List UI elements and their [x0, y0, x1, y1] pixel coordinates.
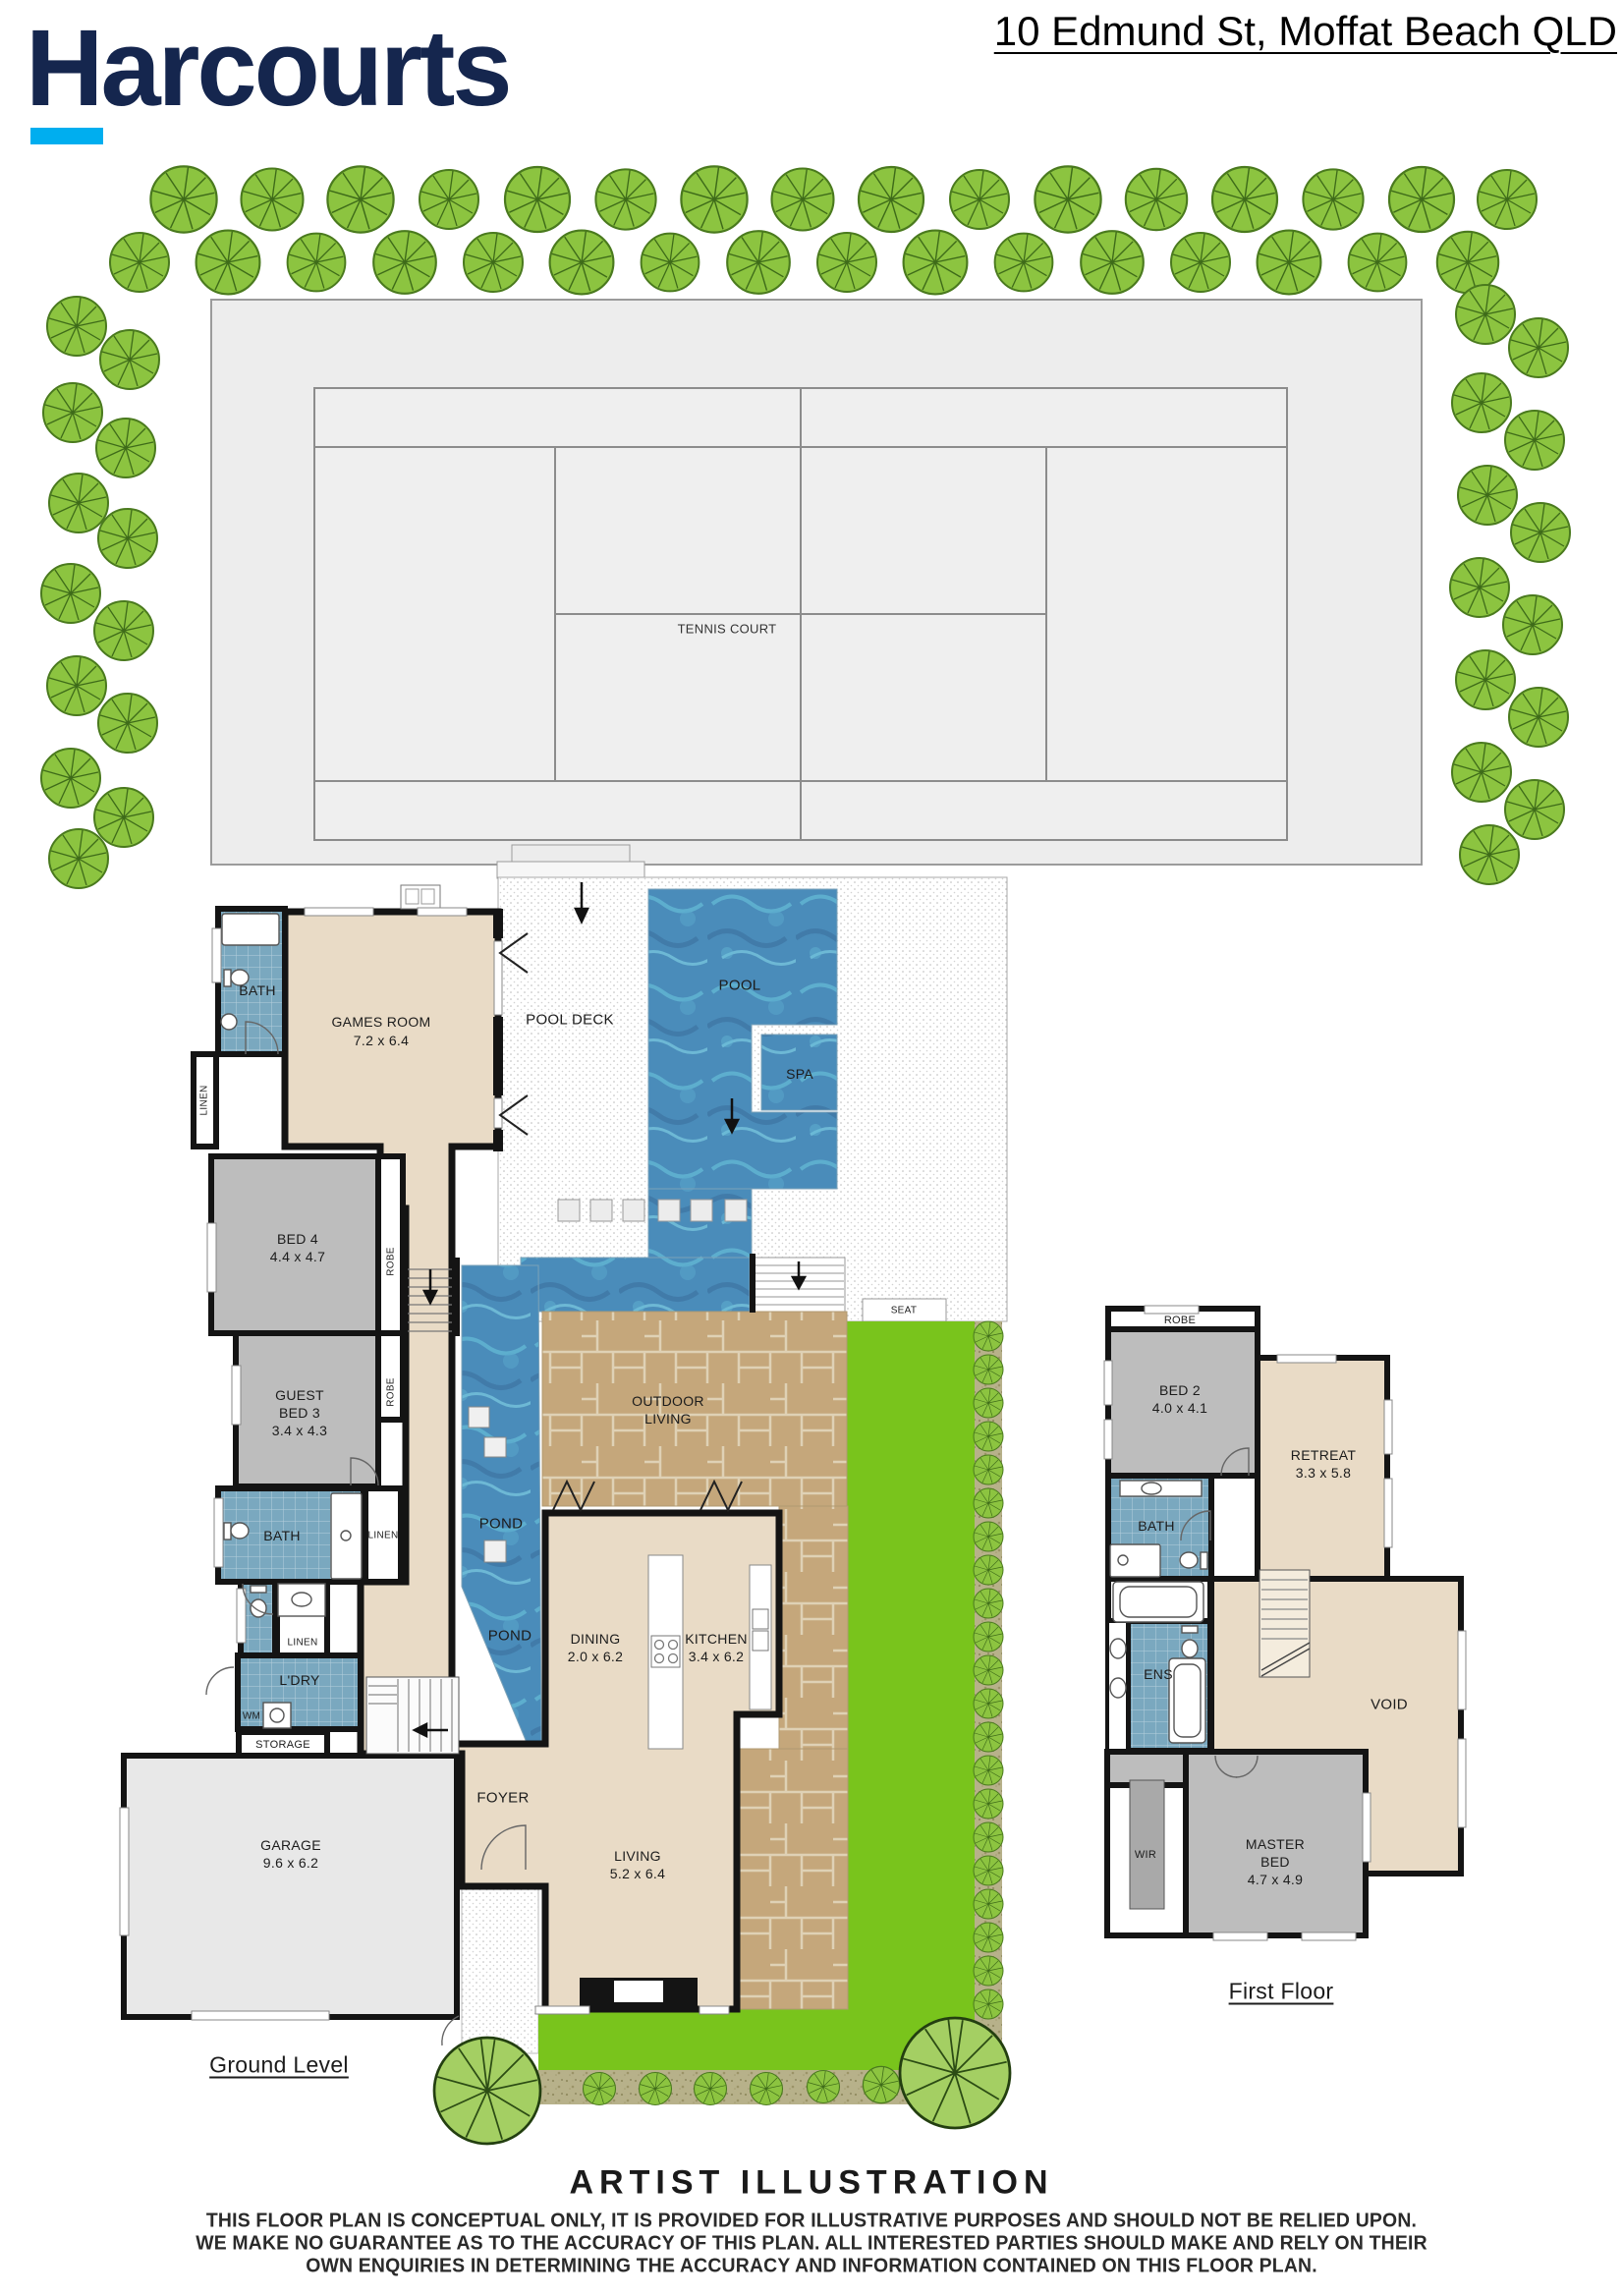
bath2-label: BATH [263, 1528, 301, 1543]
storage-label: STORAGE [255, 1739, 310, 1751]
pond [462, 1265, 541, 1745]
toilet-icon [1182, 1626, 1198, 1657]
toilet-icon [1180, 1552, 1207, 1569]
retreat-dims: 3.3 x 5.8 [1296, 1465, 1351, 1481]
seat-label: SEAT [891, 1306, 918, 1316]
kitchen-label: KITCHEN [685, 1631, 748, 1647]
bed4-dims: 4.4 x 4.7 [270, 1249, 325, 1264]
bed4-label: BED 4 [277, 1231, 318, 1247]
robe1-label: ROBE [386, 1247, 397, 1276]
pool-label: POOL [719, 978, 761, 994]
guest-bed3-l1: GUEST [275, 1387, 324, 1403]
stairs-main [366, 1677, 459, 1754]
robe-ff-label: ROBE [1164, 1315, 1196, 1326]
room-garage [124, 1756, 457, 2017]
bath1-label: BATH [239, 982, 276, 998]
floorplan-graphics [0, 0, 1623, 2296]
kitchen-dims: 3.4 x 6.2 [689, 1649, 744, 1664]
foyer-label: FOYER [476, 1790, 529, 1807]
artist-illustration-title: ARTIST ILLUSTRATION [570, 2164, 1054, 2203]
retreat-label: RETREAT [1291, 1447, 1356, 1463]
pool-deck-label: POOL DECK [526, 1012, 614, 1029]
master-bed-dims: 4.7 x 4.9 [1248, 1872, 1303, 1887]
master-bed-l1: MASTER [1246, 1836, 1305, 1852]
toilet-icon [224, 1523, 249, 1540]
linen3-label: LINEN [288, 1638, 318, 1649]
spa-label: SPA [786, 1066, 813, 1082]
wm-label: WM [243, 1711, 260, 1722]
tennis-court-label: TENNIS COURT [678, 622, 777, 637]
bed2-label: BED 2 [1159, 1382, 1201, 1398]
ground-level-caption: Ground Level [209, 2052, 349, 2079]
garage-dims: 9.6 x 6.2 [263, 1855, 318, 1871]
robe2-label: ROBE [386, 1377, 397, 1407]
stairs-ff [1259, 1570, 1310, 1677]
pond1-label: POND [479, 1516, 524, 1533]
ldry-label: L'DRY [279, 1672, 319, 1688]
living-dims: 5.2 x 6.4 [610, 1866, 665, 1881]
room-robe1 [378, 1156, 403, 1333]
first-floor-caption: First Floor [1229, 1979, 1334, 2005]
linen1-label: LINEN [199, 1086, 210, 1116]
games-room-label: GAMES ROOM [331, 1014, 430, 1030]
outdoor-living-l1: OUTDOOR [632, 1393, 704, 1409]
bed2-dims: 4.0 x 4.1 [1152, 1400, 1207, 1416]
linen2-label: LINEN [368, 1531, 399, 1541]
garage-label: GARAGE [260, 1837, 321, 1853]
disclaimer-line1: THIS FLOOR PLAN IS CONCEPTUAL ONLY, IT I… [206, 2211, 1417, 2233]
harcourts-logo: Harcourts [26, 6, 510, 131]
tennis-court [211, 300, 1422, 878]
disclaimer-line3: OWN ENQUIRIES IN DETERMINING THE ACCURAC… [306, 2256, 1317, 2278]
games-room-dims: 7.2 x 6.4 [354, 1033, 409, 1048]
logo-underline-bar [30, 128, 103, 144]
dining-dims: 2.0 x 6.2 [568, 1649, 623, 1664]
ens-label: ENS [1144, 1666, 1173, 1682]
floorplan-page: Harcourts 10 Edmund St, Moffat Beach QLD… [0, 0, 1623, 2296]
bath-ff-label: BATH [1138, 1518, 1175, 1534]
dining-label: DINING [571, 1631, 621, 1647]
void-label: VOID [1371, 1697, 1408, 1713]
disclaimer-line2: WE MAKE NO GUARANTEE AS TO THE ACCURACY … [196, 2233, 1427, 2256]
guest-bed3-l2: BED 3 [279, 1405, 320, 1421]
master-bed-l2: BED [1260, 1854, 1290, 1870]
wir-label: WIR [1135, 1849, 1156, 1861]
guest-bed3-dims: 3.4 x 4.3 [272, 1423, 327, 1438]
pond2-label: POND [488, 1628, 532, 1645]
living-label: LIVING [614, 1848, 661, 1864]
outdoor-living-l2: LIVING [644, 1411, 692, 1427]
property-address: 10 Edmund St, Moffat Beach QLD [994, 8, 1617, 55]
